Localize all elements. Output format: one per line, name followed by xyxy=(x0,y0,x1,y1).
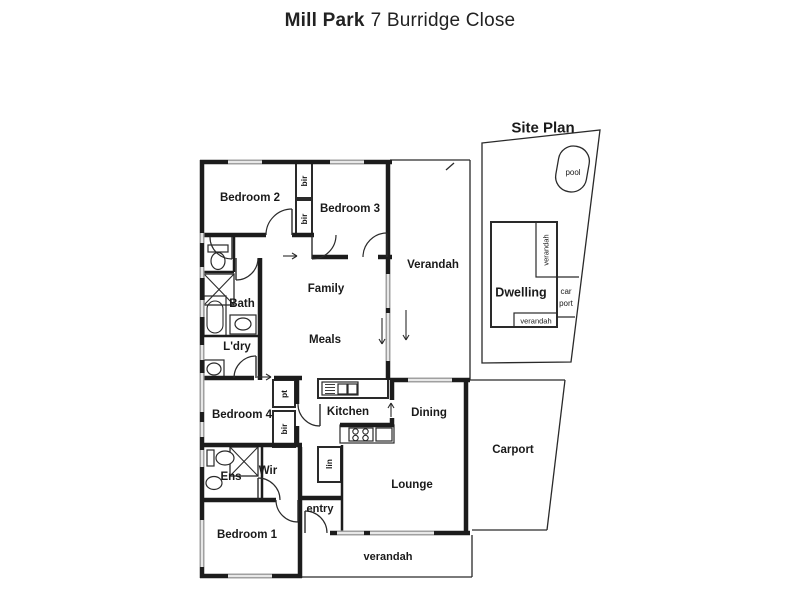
door-kitchen-arc xyxy=(298,404,320,426)
sink-bowl-2 xyxy=(348,384,357,394)
room-label-verandah: verandah xyxy=(364,551,413,563)
door-bedroom3-arc xyxy=(363,233,387,257)
room-label-kitchen: Kitchen xyxy=(327,406,369,418)
site-label-car: car xyxy=(560,287,571,296)
room-label-bath: Bath xyxy=(229,298,255,310)
site-label-pool: pool xyxy=(565,168,580,177)
counter-box xyxy=(376,428,392,441)
room-label-meals: Meals xyxy=(309,334,341,346)
closet-label-bir: bir xyxy=(299,213,309,225)
room-label-carport: Carport xyxy=(492,444,534,456)
site-label-verandah: verandah xyxy=(542,234,551,265)
ens-toilet-bowl xyxy=(216,451,234,465)
site-label-port: port xyxy=(559,299,574,308)
room-label-entry: entry xyxy=(307,503,335,515)
room-label-l-dry: L'dry xyxy=(223,341,251,353)
room-label-bedroom-3: Bedroom 3 xyxy=(320,203,380,215)
door-bedroom1-arc xyxy=(276,500,298,522)
room-label-family: Family xyxy=(308,283,345,295)
vanity-basin xyxy=(235,318,251,330)
closet-label-bir: bir xyxy=(299,175,309,187)
door-bedroom2-arc xyxy=(266,209,292,235)
site-label-verandah: verandah xyxy=(520,317,551,326)
room-label-lounge: Lounge xyxy=(391,479,433,491)
wc-toilet-bowl xyxy=(211,253,225,270)
floor-plan-canvas: Bedroom 2Bedroom 3VerandahFamilyMealsBat… xyxy=(0,0,800,600)
wall-thin xyxy=(446,163,454,170)
room-label-bedroom-4: Bedroom 4 xyxy=(212,409,273,421)
ens-cistern xyxy=(207,450,214,466)
room-label-bedroom-1: Bedroom 1 xyxy=(217,529,278,541)
wc-cistern xyxy=(208,245,228,252)
sink-bowl-1 xyxy=(338,384,347,394)
cooktop-burner xyxy=(353,435,358,440)
closet-label-lin: lin xyxy=(324,459,334,469)
trough-basin xyxy=(207,363,221,375)
bathtub-inner xyxy=(207,301,223,333)
cooktop-burner xyxy=(363,435,368,440)
door-bath-arc xyxy=(236,258,258,280)
room-label-verandah: Verandah xyxy=(407,259,459,271)
cooktop-burner xyxy=(353,429,358,434)
door-laundry-arc xyxy=(234,356,256,378)
wall-thin xyxy=(547,380,565,530)
closet-label-bir: bir xyxy=(279,423,289,435)
room-label-wir: Wir xyxy=(259,465,278,477)
cooktop-burner xyxy=(363,429,368,434)
room-label-bedroom-2: Bedroom 2 xyxy=(220,192,280,204)
site-label-site-plan: Site Plan xyxy=(511,119,574,136)
site-label-dwelling: Dwelling xyxy=(495,285,546,299)
room-label-dining: Dining xyxy=(411,407,447,419)
closet-label-pt: pt xyxy=(279,390,289,398)
room-label-ens: Ens xyxy=(220,471,241,483)
floor-plan-page: Mill Park7 Burridge Close Bedroom 2Bedro… xyxy=(0,0,800,600)
